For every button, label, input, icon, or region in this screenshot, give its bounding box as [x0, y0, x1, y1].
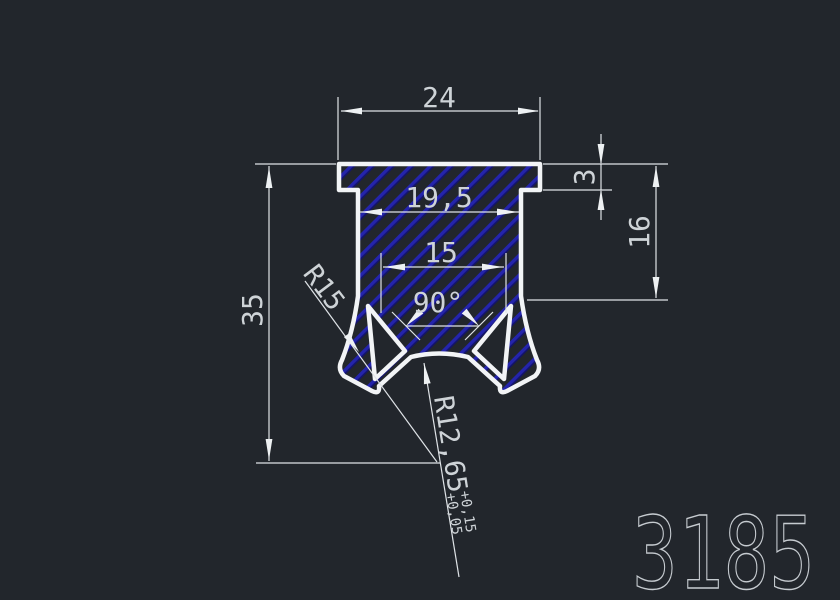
dim-text-flange-thickness: 3	[568, 169, 601, 186]
cad-canvas: 24 19,5 15 90° 3	[0, 0, 840, 600]
dim-text-groove-angle: 90°	[413, 286, 464, 319]
dim-text-body-width: 19,5	[405, 181, 472, 214]
dim-text-top-width: 24	[422, 81, 456, 114]
dim-text-groove-width: 15	[424, 236, 458, 269]
cad-drawing: 24 19,5 15 90° 3	[0, 0, 840, 600]
dim-text-side-depth: 16	[623, 215, 656, 249]
part-number: 3185	[632, 495, 815, 600]
dim-text-total-height: 35	[236, 293, 269, 327]
